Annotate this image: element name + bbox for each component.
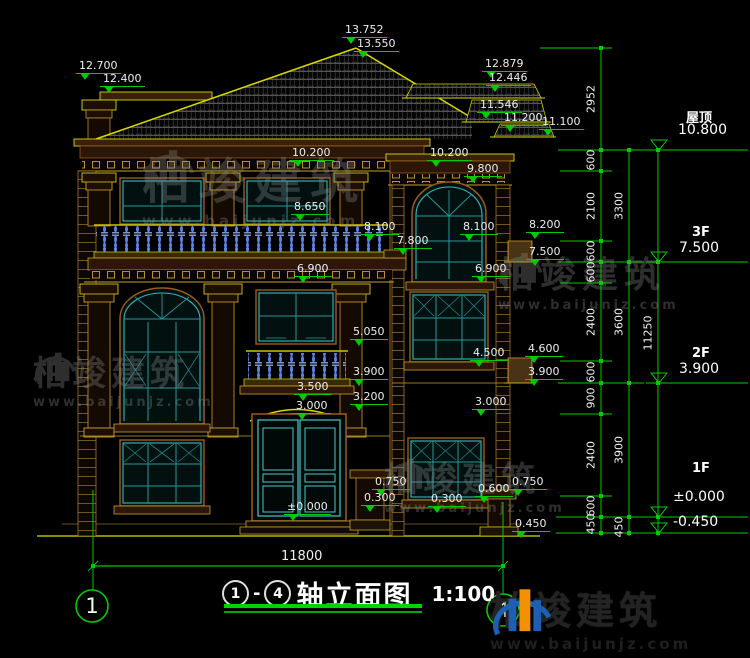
elev-marker-pedestal-cap: 0.750: [509, 476, 547, 490]
dim-900: 900: [585, 388, 598, 409]
elev-marker-cornice-2f: 6.900: [294, 263, 332, 277]
title-axis-end: 4: [264, 580, 291, 607]
elev-marker-sill-wing-3f: 6.900: [472, 263, 510, 277]
entrance-door: [240, 414, 358, 534]
elev-marker-sill-wing-2f: 4.500: [470, 347, 508, 361]
dim-600d: 600: [585, 362, 598, 383]
dim-450b: 450: [613, 517, 626, 538]
dim-2400b: 2400: [585, 441, 598, 469]
balcony-3f: [84, 225, 406, 282]
title-axis-start: 1: [222, 580, 249, 607]
elev-marker-lower-eave-2: 11.100: [539, 116, 584, 130]
window-2f-left-arched: [114, 288, 210, 432]
axis-bubble-1: 1: [76, 594, 108, 618]
dim-600b: 600: [585, 241, 598, 262]
elev-marker-subroof-eave: 12.446: [486, 72, 531, 86]
title-scale: 1:100: [431, 582, 495, 606]
dim-2100: 2100: [585, 192, 598, 220]
elev-marker-eave-right: 10.200: [427, 147, 472, 161]
company-logo: 柏竣建筑 www.baijunjz.com: [490, 580, 691, 653]
elev-marker-transom-wing: 8.100: [460, 221, 498, 235]
value-1f-below: -0.450: [673, 514, 718, 530]
label-3f: 3F: [692, 225, 710, 240]
elev-marker-box2-top: 4.600: [525, 343, 563, 357]
cad-canvas: 13.752 13.550 12.700 12.400 12.879 12.44…: [0, 0, 750, 658]
value-1f: ±0.000: [673, 489, 725, 505]
title-underline-thick: [224, 604, 422, 608]
dim-2400a: 2400: [585, 308, 598, 336]
elev-marker-sill-1f: 0.300: [361, 492, 399, 506]
dim-2952: 2952: [585, 85, 598, 113]
elev-marker-arch-crown: 3.000: [293, 400, 331, 414]
elev-marker-slab-3f: 7.800: [394, 235, 432, 249]
company-logo-icon: [490, 580, 552, 642]
title-separator: -: [253, 583, 260, 604]
elev-marker-balcony-slab: 3.900: [350, 366, 388, 380]
elev-marker-sill-wing-1f: 0.300: [428, 493, 466, 507]
elev-marker-arch-spring: 3.200: [350, 391, 388, 405]
elev-marker-pier-cap: 0.750: [372, 476, 410, 490]
value-2f: 3.900: [679, 361, 719, 377]
value-roof: 10.800: [678, 122, 727, 138]
title-underline-thin: [224, 611, 422, 613]
elev-marker-wing-band: 3.000: [472, 396, 510, 410]
dim-11250: 11250: [642, 316, 655, 351]
label-2f: 2F: [692, 346, 710, 361]
elev-marker-box2-bottom: 3.900: [525, 366, 563, 380]
elev-marker-box-top: 8.200: [526, 219, 564, 233]
value-3f: 7.500: [679, 240, 719, 256]
elev-marker-roof-peak-2: 13.550: [354, 38, 399, 52]
overall-width-dimension: 11800: [281, 549, 322, 564]
elev-marker-eave-left: 10.200: [289, 147, 334, 161]
wing-window-2f: [392, 292, 508, 383]
dim-600c: 600: [585, 262, 598, 283]
elev-marker-floor-zero: ±0.000: [284, 501, 331, 515]
elev-marker-wing-cornice: 9.800: [464, 163, 502, 177]
elev-marker-rail-3f: 8.650: [291, 201, 329, 215]
elev-marker-transom-3f: 8.100: [361, 221, 399, 235]
dim-3600: 3600: [613, 308, 626, 336]
elev-marker-balcony-rail-2f: 5.050: [350, 326, 388, 340]
label-1f: 1F: [692, 461, 710, 476]
dim-450a: 450: [585, 514, 598, 535]
dim-600a: 600: [585, 150, 598, 171]
elev-marker-subroof-top: 12.879: [482, 58, 527, 72]
elev-marker-pedestal-top: 0.600: [475, 483, 513, 497]
main-cornice: [74, 139, 430, 171]
elev-marker-arch-band: 3.500: [294, 381, 332, 395]
dim-3300: 3300: [613, 192, 626, 220]
elev-marker-roof-peak: 13.752: [342, 24, 387, 38]
elev-marker-box-bottom: 7.500: [526, 246, 564, 260]
elev-marker-base: 0.450: [512, 518, 550, 532]
dim-3900: 3900: [613, 436, 626, 464]
elev-marker-chimney-ledge: 12.400: [100, 73, 145, 87]
